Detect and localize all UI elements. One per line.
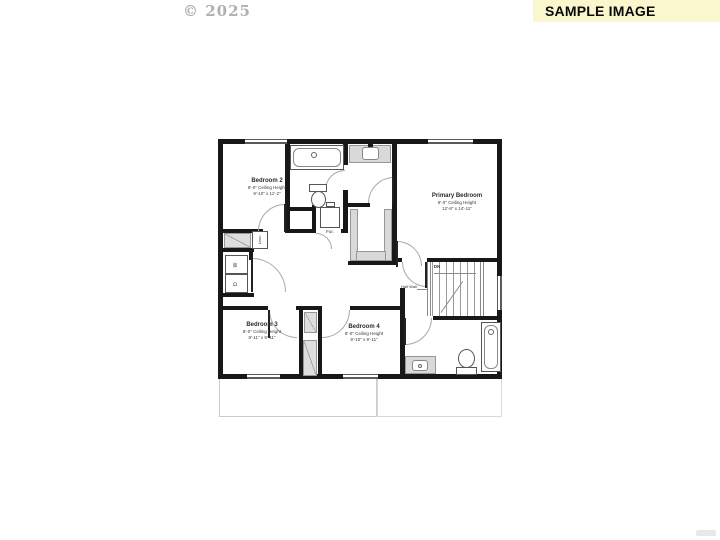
- wall: [218, 293, 254, 297]
- stair-rail: [480, 262, 481, 316]
- tub-drain: [311, 152, 317, 158]
- room-dims: 9'-10" x 9'-11": [324, 337, 404, 343]
- faucet: [368, 144, 373, 147]
- wall: [433, 316, 497, 320]
- lower-floor-outline-right: [377, 379, 502, 417]
- door-swing: [316, 233, 332, 249]
- screenshot-root: © 2025 SAMPLE IMAGE: [0, 0, 720, 540]
- room-label-bedroom-4: Bedroom 4 8'-0" Ceiling Height 9'-10" x …: [324, 324, 404, 342]
- room-name: Bedroom 4: [324, 324, 404, 331]
- wall: [287, 139, 428, 144]
- sample-image-banner: SAMPLE IMAGE: [533, 0, 720, 22]
- room-dims: 12'-8" x 14'-11": [417, 206, 497, 212]
- door-swing: [258, 204, 285, 231]
- half-wall-line: [427, 262, 428, 316]
- room-dims: 9'-10" x 11'-2": [227, 191, 307, 197]
- bathtub-inner: [293, 148, 341, 167]
- dryer-label: D: [233, 275, 239, 293]
- door-leaf: [396, 241, 398, 267]
- stair-rail: [483, 262, 484, 316]
- door-swing: [405, 318, 432, 345]
- washer-label: W: [233, 256, 239, 274]
- linen-shelf: [224, 233, 251, 248]
- wall: [218, 139, 223, 379]
- toilet-bowl: [311, 191, 326, 208]
- room-label-primary-bedroom: Primary Bedroom 8'-0" Ceiling Height 12'…: [417, 193, 497, 211]
- wall: [343, 190, 348, 233]
- window: [343, 374, 378, 379]
- closet-shelf: [304, 312, 317, 333]
- door-leaf: [392, 177, 394, 204]
- wall: [348, 261, 397, 265]
- room-name: Bedroom 3: [222, 322, 302, 329]
- window: [247, 374, 280, 379]
- door-swing: [397, 241, 422, 266]
- room-label-bedroom-2: Bedroom 2 8'-0" Ceiling Height 9'-10" x …: [227, 178, 307, 196]
- wall: [350, 306, 405, 310]
- wall: [497, 139, 502, 276]
- stair-dimension-line: [434, 273, 476, 274]
- toilet-bowl: [458, 349, 475, 368]
- corner-artifact: [696, 530, 716, 536]
- tub-drain: [488, 329, 494, 335]
- sink: [362, 147, 379, 160]
- room-label-bedroom-3: Bedroom 3 8'-0" Ceiling Height 9'-11" x …: [222, 322, 302, 340]
- linen-label: Linen: [258, 229, 262, 251]
- room-name: Primary Bedroom: [417, 193, 497, 200]
- room-dims: 9'-11" x 9'-11": [222, 335, 302, 341]
- furnace-vent: [326, 202, 335, 207]
- door-leaf: [251, 258, 253, 292]
- furnace: [320, 207, 340, 228]
- furnace-label: Fur.: [312, 229, 348, 234]
- closet-shelf: [356, 251, 386, 261]
- wall: [218, 306, 268, 310]
- door-swing: [252, 258, 286, 292]
- room-name: Bedroom 2: [227, 178, 307, 185]
- door-swing: [368, 177, 394, 203]
- sink-drain: [418, 364, 422, 368]
- window: [245, 139, 287, 144]
- wall: [348, 203, 370, 207]
- door-leaf: [404, 318, 406, 345]
- door-leaf: [284, 204, 286, 232]
- lower-floor-outline-left: [219, 379, 377, 417]
- copyright-watermark: © 2025: [183, 2, 251, 20]
- window: [428, 139, 473, 144]
- half-wall-line: [430, 262, 431, 316]
- closet-shelf: [303, 340, 317, 376]
- window: [497, 276, 502, 310]
- toilet-tank: [456, 367, 477, 375]
- half-wall-leader: [417, 289, 427, 290]
- wall: [378, 374, 502, 379]
- door-swing: [325, 170, 345, 190]
- stairs-down-label: DN: [430, 264, 444, 269]
